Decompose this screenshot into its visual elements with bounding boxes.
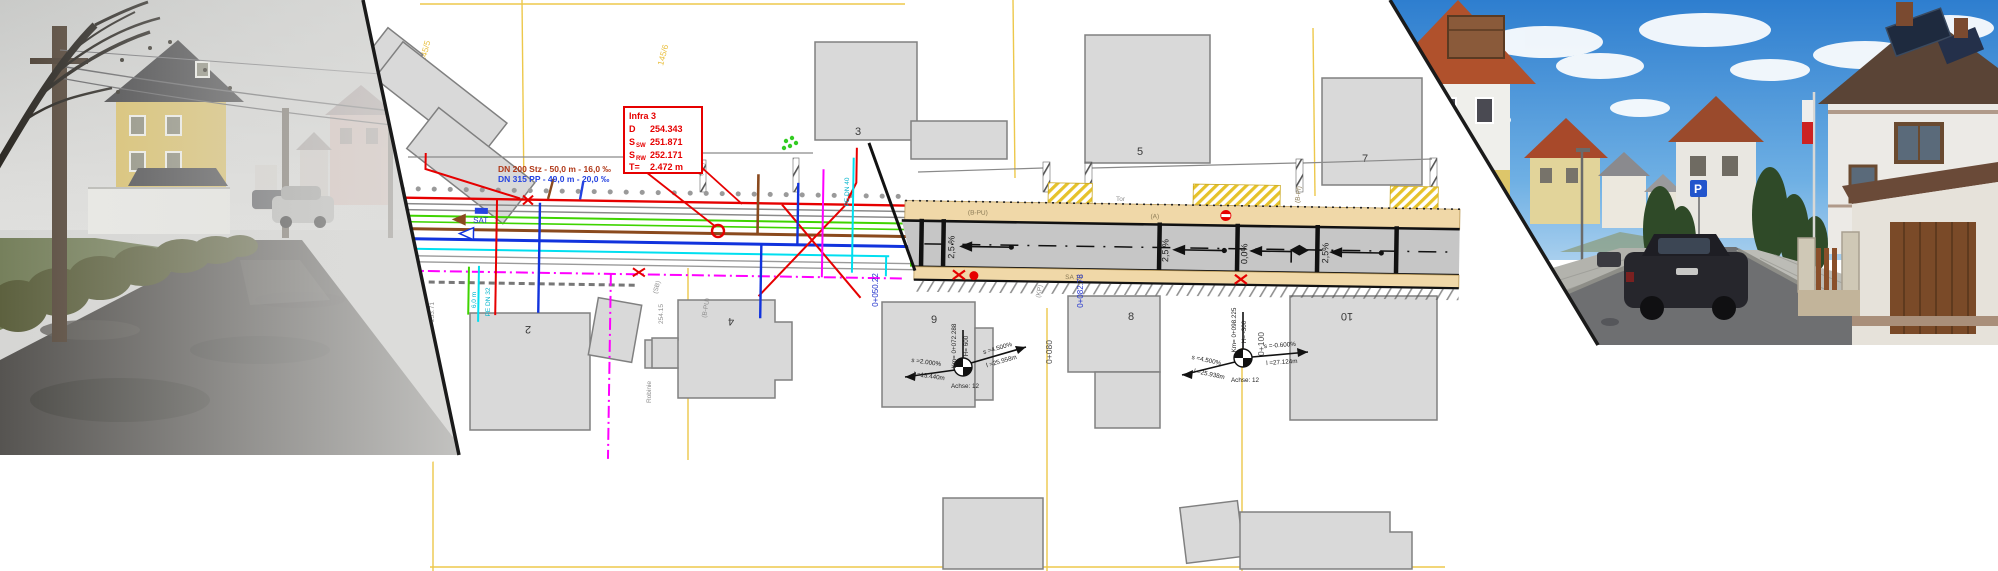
km-label: Km= 0+072.288 [951,323,958,368]
infra-row-label: S [629,150,635,160]
axis-label: Achse: 12 [1231,377,1260,384]
pipe-size-label: PE DN 32 [485,287,492,316]
infra-title: Infra 3 [629,111,656,121]
length-label: 6,0 m [471,292,478,308]
h-label: H= 600 [963,335,970,356]
station-black: 0+080 [1044,340,1054,364]
surface-label: (A) [1150,213,1159,220]
building-number: 4 [728,315,734,327]
infra-row-value: 251.871 [650,137,683,147]
infra-row-value: 2.472 m [650,162,683,172]
infra-row-value: 252.171 [650,150,683,160]
storm-pipe-label: DN 315 PP - 49,0 m - 20,0 ‰ [498,174,610,184]
sewer-pipe-label: DN 200 Stz - 50,0 m - 16,0 ‰ [498,164,611,174]
axis-label: Achse: 12 [951,383,980,390]
infra-row-value: 254.343 [650,124,683,134]
building-number: 8 [1128,311,1134,323]
station-blue: 0+050.22 [871,273,880,307]
slope-label: 2,5 % [1160,239,1170,262]
valve-symbol [475,208,488,214]
infra-row-label: S [629,137,635,147]
tree-species-label: Robinie [646,381,653,403]
station-blue: 0+082.78 [1076,274,1085,308]
building-number: 2 [525,323,531,335]
sat-label: SAT [473,216,488,225]
height-label: 254.15 [658,304,665,324]
slope-label: 2,5% [1320,243,1330,264]
building-number: 7 [1362,153,1368,165]
manhole [1601,318,1619,326]
slope-label: 0,0% [1239,244,1249,265]
surface-label: (B-PU) [968,210,988,217]
building-number: 5 [1137,146,1143,158]
km-label: Km= 0+098.225 [1231,307,1238,352]
svg-text:P: P [1694,182,1702,196]
tor-label: Tor [1116,196,1126,203]
building-number: 9 [931,314,937,326]
building-number: 10 [1341,310,1353,322]
building-number: 3 [855,126,861,138]
slope-label: 2,5 % [946,236,956,259]
wood-fence [1816,248,1837,290]
montage-canvas: P [0,0,1998,571]
infra-row-label: T= [629,162,640,172]
infra-row-sub: SW [636,143,646,149]
h-label: H= -300 [1241,320,1248,343]
photomontage-street-plan: P [0,0,1998,571]
infra-row-label: D [629,124,636,134]
distant-car [1597,252,1621,267]
pipe-size-label: PE DN 40 [844,177,851,206]
